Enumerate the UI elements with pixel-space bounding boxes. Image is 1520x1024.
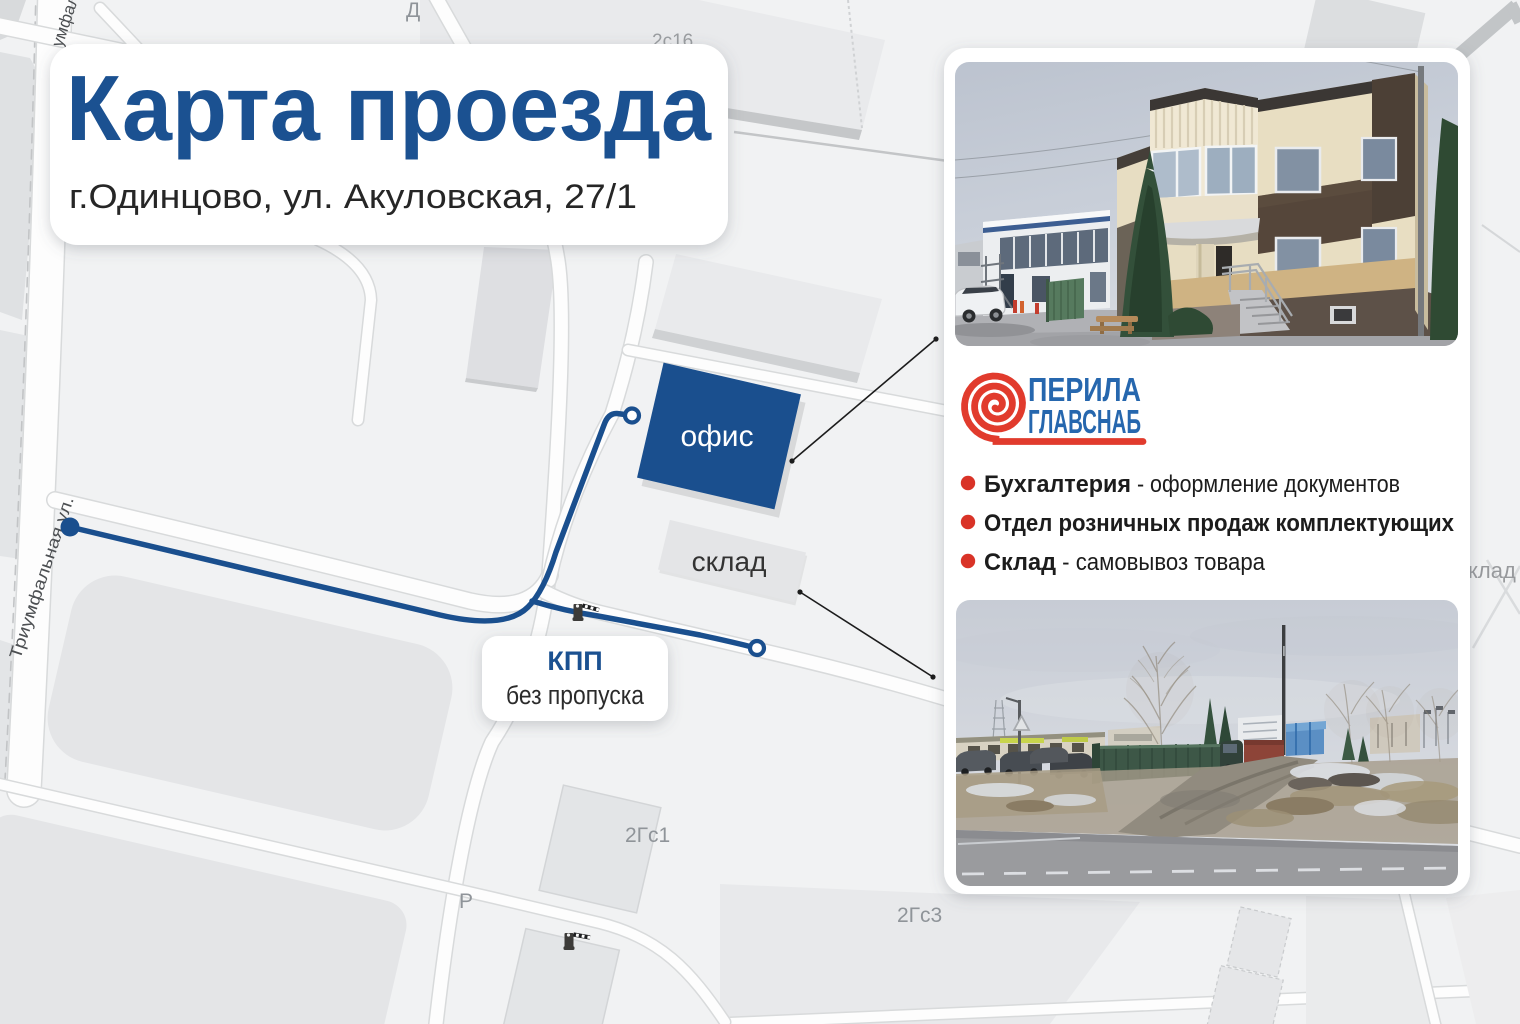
svg-text:Карта проезда: Карта проезда <box>66 56 712 160</box>
svg-text:офис: офис <box>680 420 753 453</box>
svg-text:г.Одинцово, ул. Акуловская, 27: г.Одинцово, ул. Акуловская, 27/1 <box>69 178 637 216</box>
svg-text:2Гс1: 2Гс1 <box>625 824 670 847</box>
svg-text:Бухгалтерия - оформление докум: Бухгалтерия - оформление документов <box>984 471 1400 498</box>
svg-text:Отдел розничных продаж комплек: Отдел розничных продаж комплектующих <box>984 510 1455 537</box>
svg-text:без пропуска: без пропуска <box>506 682 645 710</box>
svg-text:2Гс3: 2Гс3 <box>897 904 942 927</box>
svg-text:склад: склад <box>692 546 767 577</box>
svg-text:ГЛАВСНАБ: ГЛАВСНАБ <box>1028 403 1141 440</box>
svg-text:Д: Д <box>406 0 420 22</box>
svg-text:Р: Р <box>459 890 473 913</box>
svg-text:КПП: КПП <box>547 646 602 676</box>
svg-text:Склад - самовывоз товара: Склад - самовывоз товара <box>984 549 1266 576</box>
